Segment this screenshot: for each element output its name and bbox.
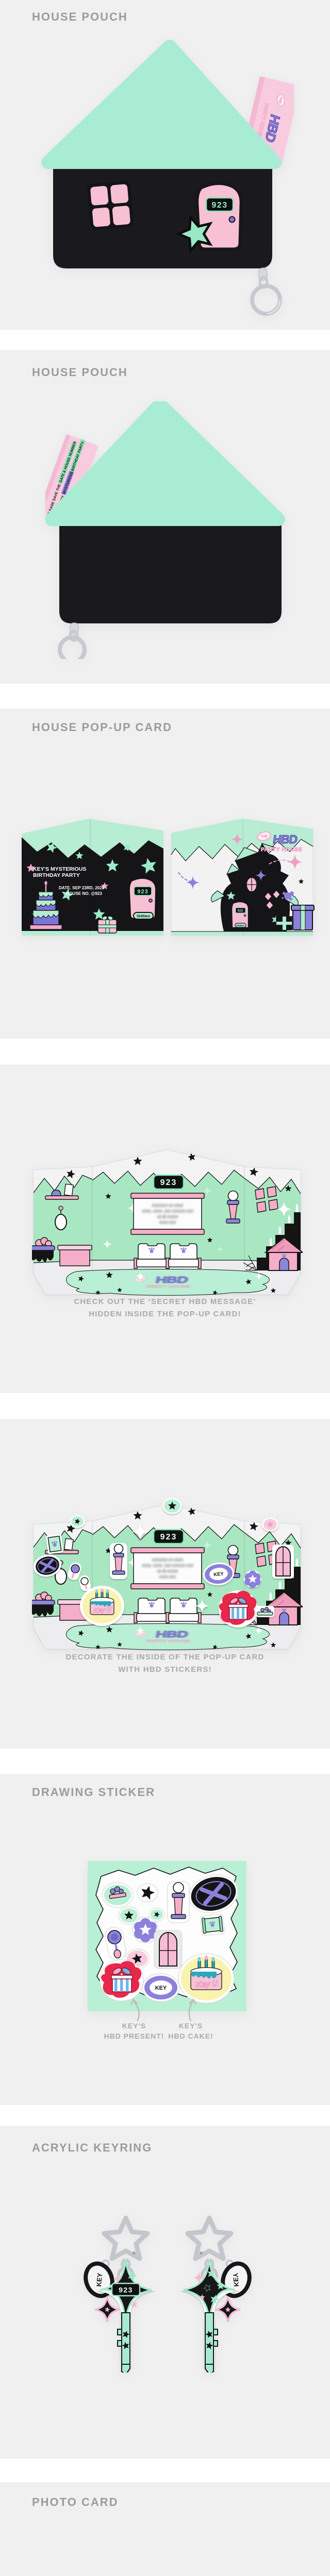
- cake-sticker-text: Key U: [195, 1979, 219, 1989]
- section-heading: DRAWING STICKER: [32, 1787, 155, 1798]
- section-drawing-sticker: DRAWING STICKER: [0, 1774, 330, 2105]
- section-house-pouch-front: HOUSE POUCH THE HBD PARTY HOUSE: [0, 0, 330, 330]
- star-clasp: [104, 2218, 147, 2259]
- label-line: HBD CAKE!: [168, 2032, 213, 2040]
- section-acrylic-keyring: ACRYLIC KEYRING KEY: [0, 2126, 330, 2459]
- section-heading: ACRYLIC KEYRING: [32, 2142, 152, 2154]
- product-photo-popup-cards: KEY'S MYSTERIOUS BIRTHDAY PARTY DATE. SE…: [21, 817, 315, 940]
- card-title-line2: BIRTHDAY PARTY: [33, 872, 80, 878]
- product-photo-house-pouch-back: PLEASE SAVE THE DATE & HOUSE NUMBER AND …: [45, 401, 288, 659]
- key-plate-text: 923: [119, 2286, 133, 2294]
- sticker-star: [137, 1884, 158, 1902]
- card-door: 923 SHINee: [129, 878, 156, 919]
- pouch-window: [87, 181, 134, 231]
- label-line: KEY'S: [179, 2022, 203, 2030]
- caption-line: DECORATE THE INSIDE OF THE POP-UP CARD: [0, 1651, 330, 1664]
- zipper-ring: [252, 268, 280, 314]
- sticker-window: [154, 1930, 182, 1969]
- card-house-no: HOUSE NO. @923: [66, 891, 102, 896]
- popup-card-front: KEY'S MYSTERIOUS BIRTHDAY PARTY DATE. SE…: [22, 819, 163, 936]
- product-photo-popup-open: [32, 1146, 303, 1297]
- popup-card-back: 923 SHINee THE HBD PARTY HOUSE: [171, 819, 314, 936]
- sticker-frame: [200, 1914, 225, 1936]
- section-heading: PHOTO CARD: [32, 2497, 119, 2508]
- charm-text-mirrored: KEY: [232, 2273, 240, 2287]
- caption-line: CHECK OUT THE ‘SECRET HBD MESSAGE’: [0, 1296, 330, 1308]
- product-detail-page: THE HBD PARTY HOUSE: [0, 0, 330, 2576]
- star-clasp: [188, 2218, 231, 2259]
- card-logo-hbd: HBD: [272, 833, 299, 846]
- caption-line: WITH HBD STICKERS!: [0, 1664, 330, 1676]
- key-sticker-text: KEY: [213, 1571, 224, 1578]
- section-popup-open: CHECK OUT THE ‘SECRET HBD MESSAGE’ HIDDE…: [0, 1064, 330, 1393]
- pouch-roof: [48, 46, 275, 162]
- section-popup-card: HOUSE POP-UP CARD KEY'S MYSTERIOUS BIRTH…: [0, 708, 330, 1039]
- sticker-present: [100, 1960, 143, 2001]
- sticker-cake: Key U: [178, 1954, 234, 2003]
- sticker-label-cake: KEY'S HBD CAKE!: [152, 2021, 229, 2042]
- door-badge-text: SHINee: [236, 924, 244, 927]
- card-title-line1: KEY'S MYSTERIOUS: [33, 866, 86, 872]
- section-heading: HOUSE POP-UP CARD: [32, 722, 172, 733]
- cake-sticker-text: Key U: [93, 1606, 111, 1614]
- card-logo-party: PARTY HOUSE: [261, 846, 302, 853]
- section-popup-decorated: Key U KEY: [0, 1419, 330, 1749]
- section-heading: HOUSE POUCH: [32, 11, 128, 23]
- keyring-back: KEY: [180, 2218, 254, 2372]
- label-line: KEY'S: [122, 2022, 146, 2030]
- sticker-podium: [168, 1882, 189, 1923]
- key-sticker-text: KEY: [155, 1985, 167, 1991]
- door-sign-text: 923: [137, 889, 148, 895]
- product-photo-house-pouch-front: THE HBD PARTY HOUSE 923: [40, 36, 294, 326]
- product-photo-keyrings: KEY 923: [81, 2213, 254, 2372]
- pouch-body: [59, 520, 282, 623]
- door-sign-text: 923: [211, 201, 227, 210]
- label-arrows: [88, 1996, 246, 2022]
- card-date: DATE. SEP 23RD, 2025: [59, 886, 105, 890]
- product-photo-popup-decorated: Key U KEY: [32, 1497, 303, 1651]
- door-badge-text: SHINee: [137, 914, 150, 919]
- sticker-dish: [102, 1883, 133, 1907]
- keyring-front: KEY 923: [81, 2218, 155, 2372]
- charm-text: KEY: [95, 2273, 104, 2287]
- card-logo-the: THE: [260, 835, 268, 839]
- section-heading: HOUSE POUCH: [32, 367, 128, 378]
- door-sign-text: 923: [238, 909, 243, 913]
- caption-line: HIDDEN INSIDE THE POP-UP CARD!: [0, 1308, 330, 1320]
- section-house-pouch-back: HOUSE POUCH PLEASE SAVE THE DATE & HOUSE…: [0, 350, 330, 684]
- section-photo-card: PHOTO CARD SMTOWN &STORE SMTOWN &STORE S…: [0, 2482, 330, 2576]
- product-photo-sticker-sheet: KEY Key U: [88, 1861, 246, 2011]
- zipper-ring: [60, 623, 85, 659]
